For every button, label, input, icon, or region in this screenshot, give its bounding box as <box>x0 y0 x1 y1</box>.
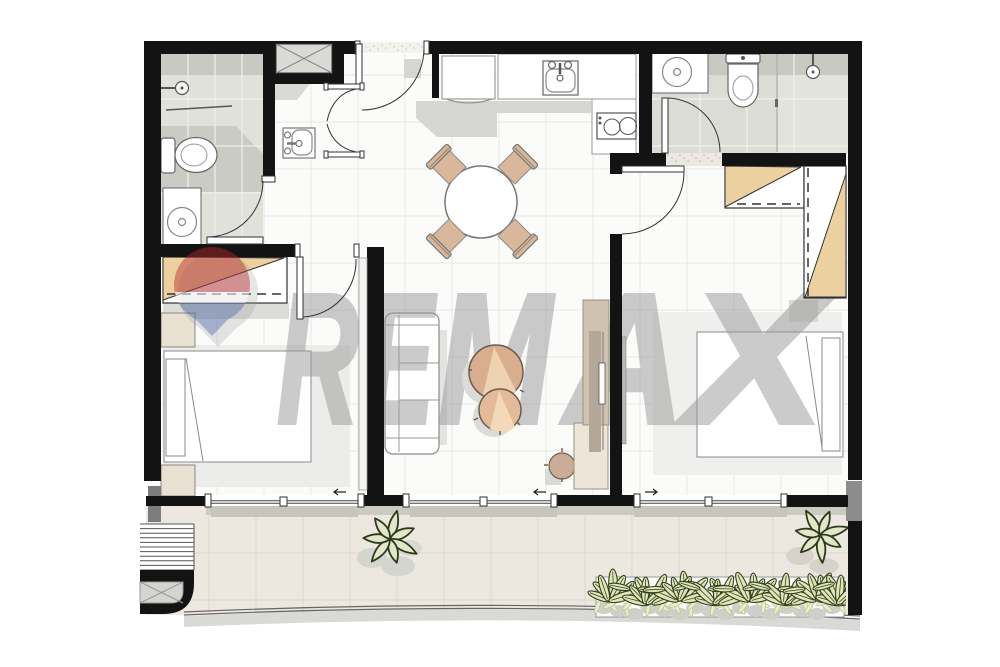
svg-text:R: R <box>277 256 359 463</box>
